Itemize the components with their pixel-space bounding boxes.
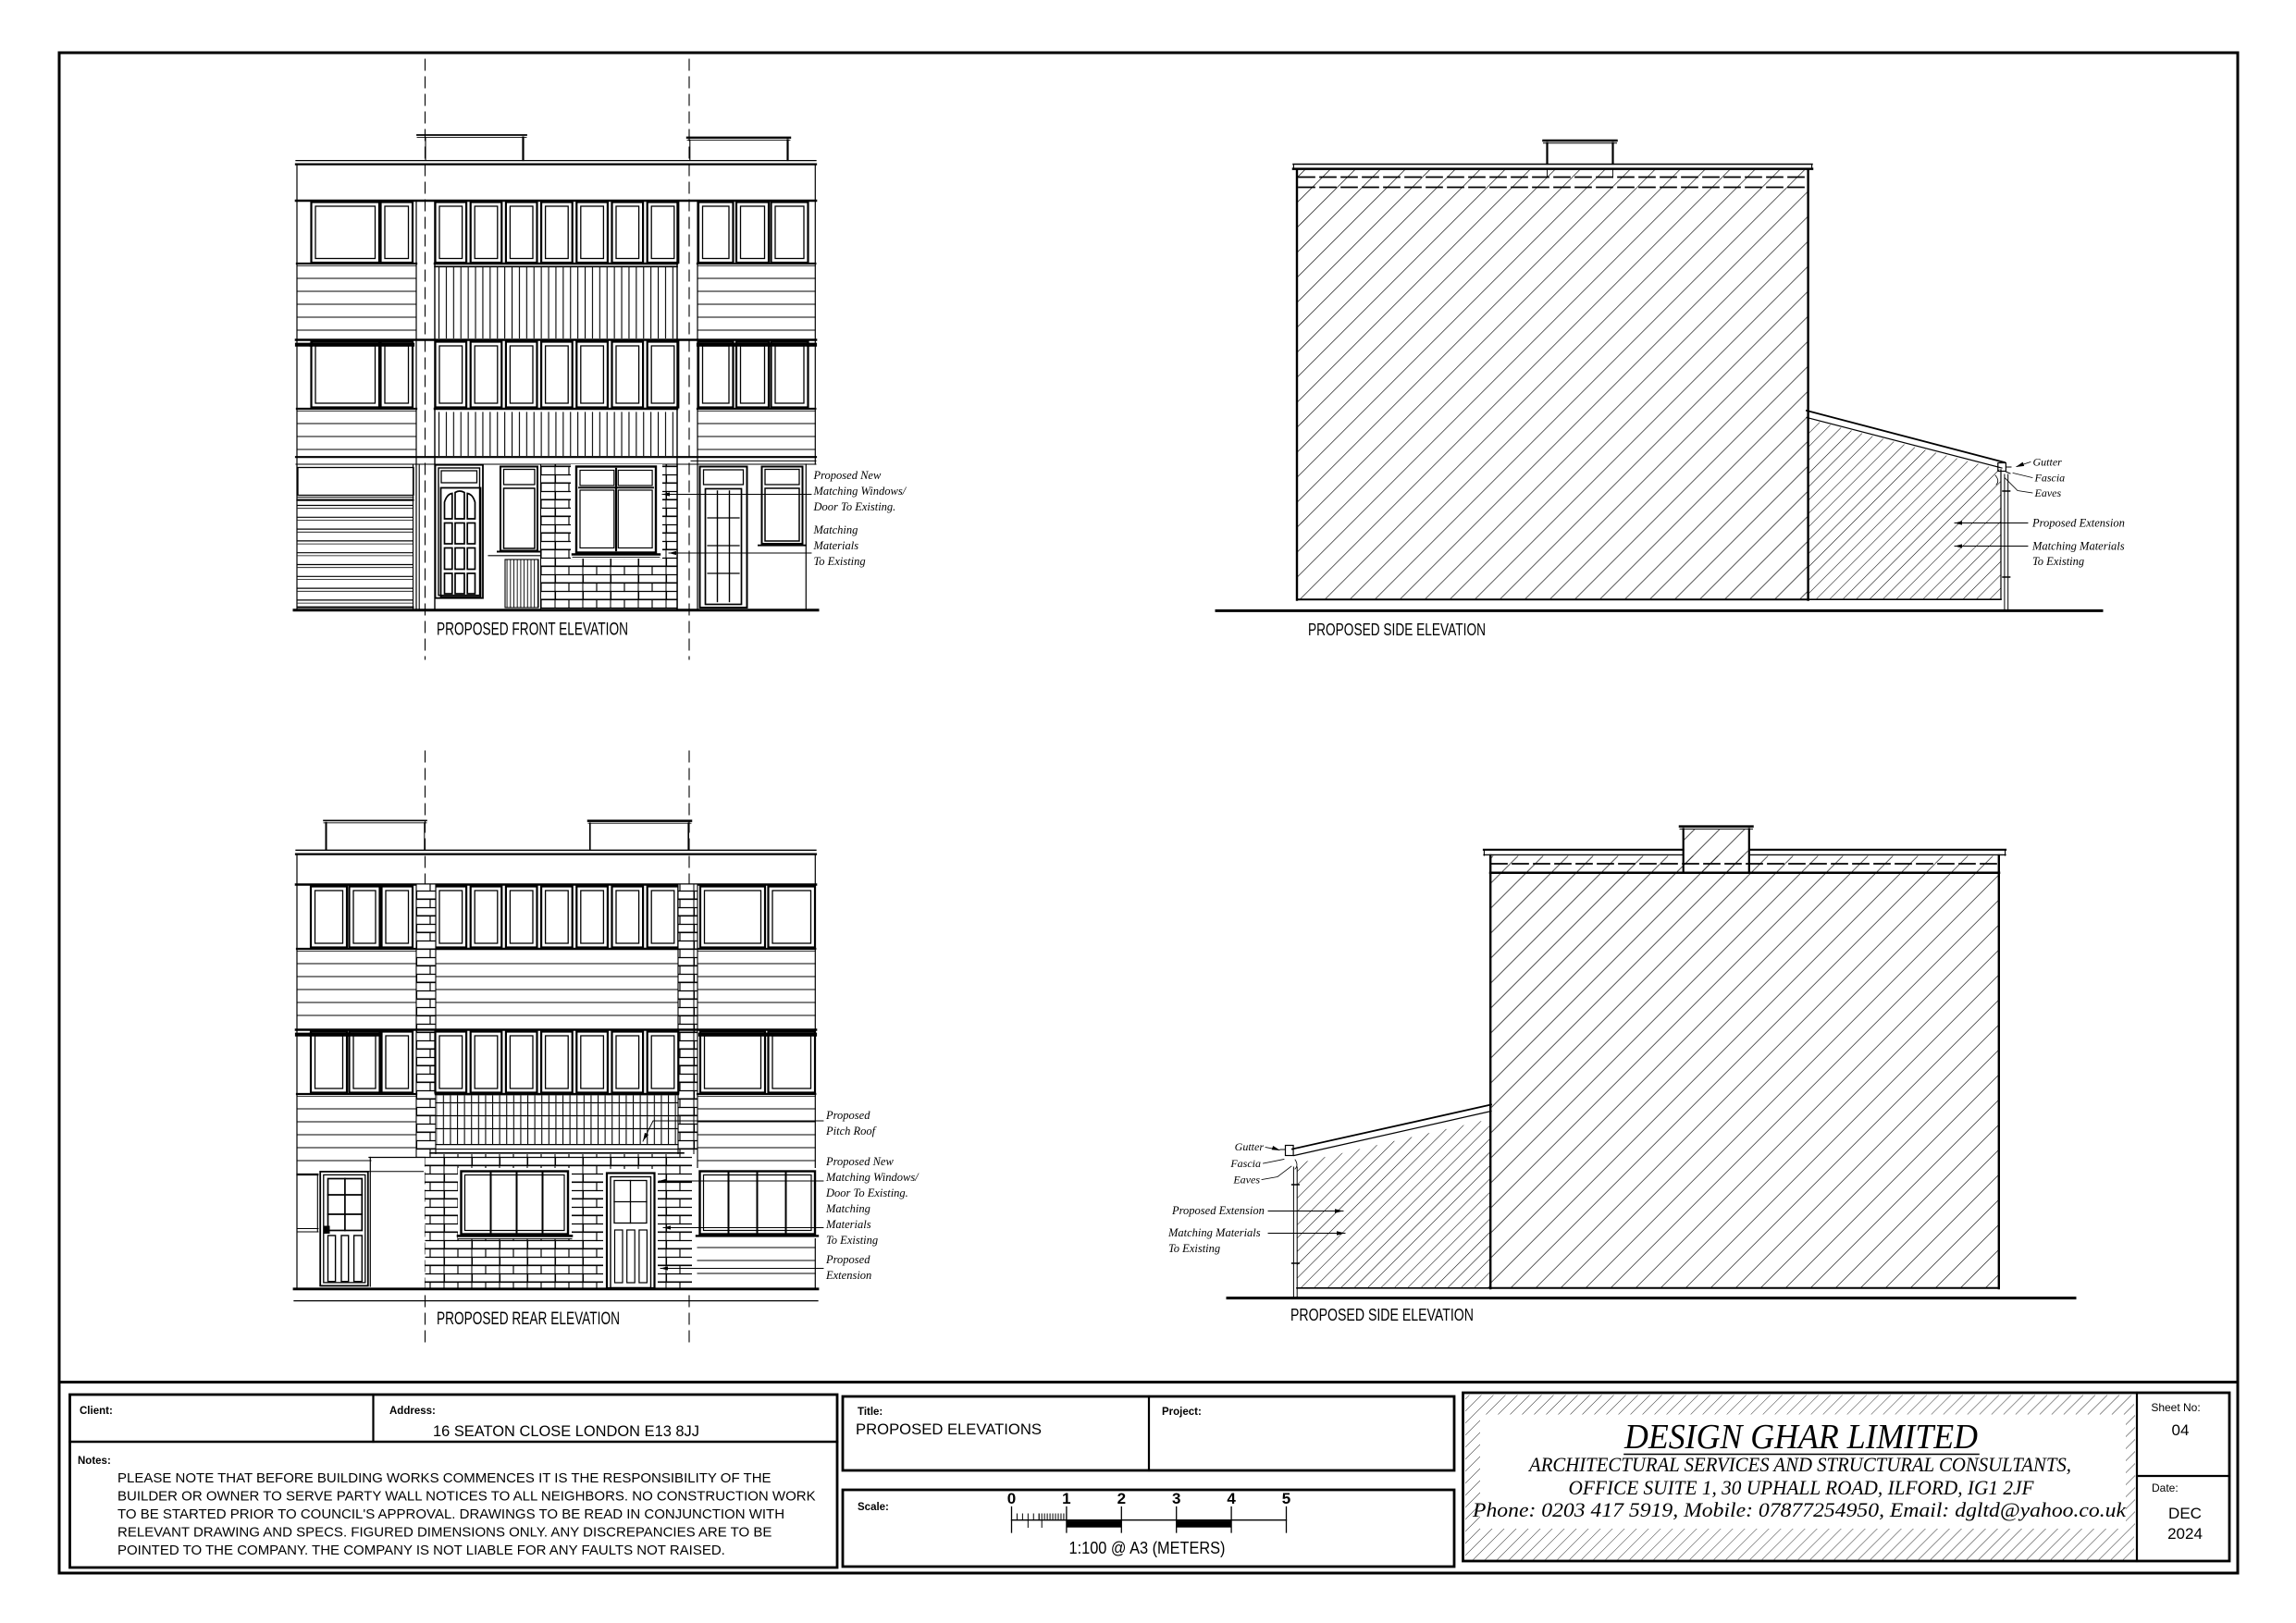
svg-text:2: 2 bbox=[1117, 1490, 1126, 1507]
svg-text:2024: 2024 bbox=[2167, 1525, 2203, 1543]
svg-text:Title:: Title: bbox=[858, 1407, 883, 1418]
svg-text:Matching: Matching bbox=[813, 523, 858, 536]
svg-text:Phone: 0203 417 5919, Mobile:: Phone: 0203 417 5919, Mobile: 0787725495… bbox=[1472, 1498, 2127, 1521]
svg-text:Date:: Date: bbox=[2152, 1482, 2179, 1494]
svg-text:PLEASE NOTE THAT BEFORE BUILDI: PLEASE NOTE THAT BEFORE BUILDING WORKS C… bbox=[117, 1470, 772, 1486]
svg-text:Proposed New: Proposed New bbox=[825, 1155, 894, 1168]
svg-text:POINTED TO THE COMPANY. THE CO: POINTED TO THE COMPANY. THE COMPANY IS N… bbox=[117, 1543, 725, 1558]
svg-text:Client:: Client: bbox=[80, 1406, 113, 1417]
svg-text:Proposed: Proposed bbox=[825, 1109, 870, 1122]
svg-text:Project:: Project: bbox=[1162, 1407, 1202, 1418]
svg-text:1: 1 bbox=[1062, 1490, 1070, 1507]
svg-text:TO BE STARTED PRIOR TO COUNCI: TO BE STARTED PRIOR TO COUNCIL'S APPROVA… bbox=[117, 1506, 784, 1522]
svg-text:To Existing: To Existing bbox=[1168, 1242, 1220, 1255]
svg-text:Eaves: Eaves bbox=[2034, 486, 2062, 499]
svg-text:To Existing: To Existing bbox=[814, 555, 866, 568]
svg-text:PROPOSED SIDE ELEVATION: PROPOSED SIDE ELEVATION bbox=[1290, 1306, 1474, 1324]
svg-text:PROPOSED FRONT ELEVATION: PROPOSED FRONT ELEVATION bbox=[437, 621, 628, 640]
svg-text:Materials: Materials bbox=[813, 539, 859, 552]
svg-text:To Existing: To Existing bbox=[826, 1234, 878, 1247]
svg-text:Pitch Roof: Pitch Roof bbox=[825, 1125, 877, 1137]
svg-text:0: 0 bbox=[1007, 1490, 1016, 1507]
svg-text:Matching Windows/: Matching Windows/ bbox=[825, 1171, 920, 1184]
svg-text:Sheet No:: Sheet No: bbox=[2151, 1401, 2200, 1414]
svg-text:Proposed Extension: Proposed Extension bbox=[2031, 517, 2125, 530]
svg-text:Matching: Matching bbox=[825, 1202, 870, 1215]
svg-text:PROPOSED SIDE ELEVATION: PROPOSED SIDE ELEVATION bbox=[1308, 621, 1486, 639]
svg-text:RELEVANT DRAWING AND SPECS. FI: RELEVANT DRAWING AND SPECS. FIGURED DIME… bbox=[117, 1525, 772, 1541]
svg-text:DESIGN GHAR LIMITED: DESIGN GHAR LIMITED bbox=[1623, 1418, 1978, 1457]
svg-text:Fascia: Fascia bbox=[2034, 472, 2066, 485]
svg-text:OFFICE SUITE 1, 30 UPHALL ROAD: OFFICE SUITE 1, 30 UPHALL ROAD, ILFORD, … bbox=[1569, 1476, 2035, 1499]
svg-text:Proposed New: Proposed New bbox=[813, 469, 882, 482]
svg-text:ARCHITECTURAL SERVICES AND STR: ARCHITECTURAL SERVICES AND STRUCTURAL CO… bbox=[1527, 1453, 2071, 1476]
svg-text:Matching Materials: Matching Materials bbox=[1167, 1226, 1261, 1239]
svg-text:Matching Materials: Matching Materials bbox=[2031, 540, 2125, 553]
svg-text:PROPOSED ELEVATIONS: PROPOSED ELEVATIONS bbox=[856, 1420, 1042, 1438]
svg-text:Proposed: Proposed bbox=[825, 1253, 870, 1266]
svg-text:Address:: Address: bbox=[389, 1406, 436, 1417]
svg-text:Gutter: Gutter bbox=[2033, 456, 2063, 469]
svg-text:PROPOSED REAR ELEVATION: PROPOSED REAR ELEVATION bbox=[437, 1309, 620, 1329]
svg-text:Door To Existing.: Door To Existing. bbox=[813, 500, 896, 513]
svg-text:5: 5 bbox=[1282, 1490, 1290, 1507]
svg-text:Eaves: Eaves bbox=[1232, 1174, 1260, 1187]
svg-text:BUILDER OR OWNER TO SERVE PART: BUILDER OR OWNER TO SERVE PARTY WALL NOT… bbox=[117, 1489, 816, 1505]
svg-text:04: 04 bbox=[2172, 1421, 2190, 1439]
svg-text:To Existing: To Existing bbox=[2032, 555, 2084, 568]
svg-text:3: 3 bbox=[1172, 1490, 1180, 1507]
svg-text:Fascia: Fascia bbox=[1229, 1157, 1261, 1170]
svg-text:4: 4 bbox=[1227, 1490, 1236, 1507]
svg-text:Matching Windows/: Matching Windows/ bbox=[813, 485, 907, 498]
svg-text:Gutter: Gutter bbox=[1235, 1140, 1265, 1153]
svg-text:1:100 @ A3 (METERS): 1:100 @ A3 (METERS) bbox=[1069, 1538, 1226, 1557]
svg-text:Door To Existing.: Door To Existing. bbox=[825, 1187, 908, 1199]
svg-text:Materials: Materials bbox=[825, 1218, 871, 1231]
svg-text:Scale:: Scale: bbox=[858, 1502, 889, 1513]
svg-text:Extension: Extension bbox=[825, 1269, 871, 1282]
svg-text:Proposed Extension: Proposed Extension bbox=[1171, 1204, 1265, 1217]
svg-text:DEC: DEC bbox=[2168, 1505, 2202, 1522]
svg-text:Notes:: Notes: bbox=[78, 1456, 111, 1467]
svg-text:16 SEATON CLOSE LONDON E13 8JJ: 16 SEATON CLOSE LONDON E13 8JJ bbox=[433, 1423, 699, 1440]
